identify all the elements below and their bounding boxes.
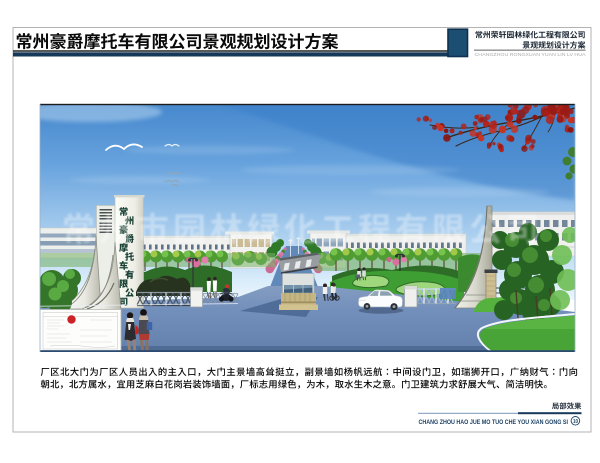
svg-text:10: 10 xyxy=(573,419,578,425)
svg-text:CHANGZHOU RONGXUAN YUAN LIN LV: CHANGZHOU RONGXUAN YUAN LIN LV HUA xyxy=(475,52,587,57)
svg-text:CHANG ZHOU HAO JUE MO TUO CHE: CHANG ZHOU HAO JUE MO TUO CHE YOU XIAN G… xyxy=(419,419,569,426)
